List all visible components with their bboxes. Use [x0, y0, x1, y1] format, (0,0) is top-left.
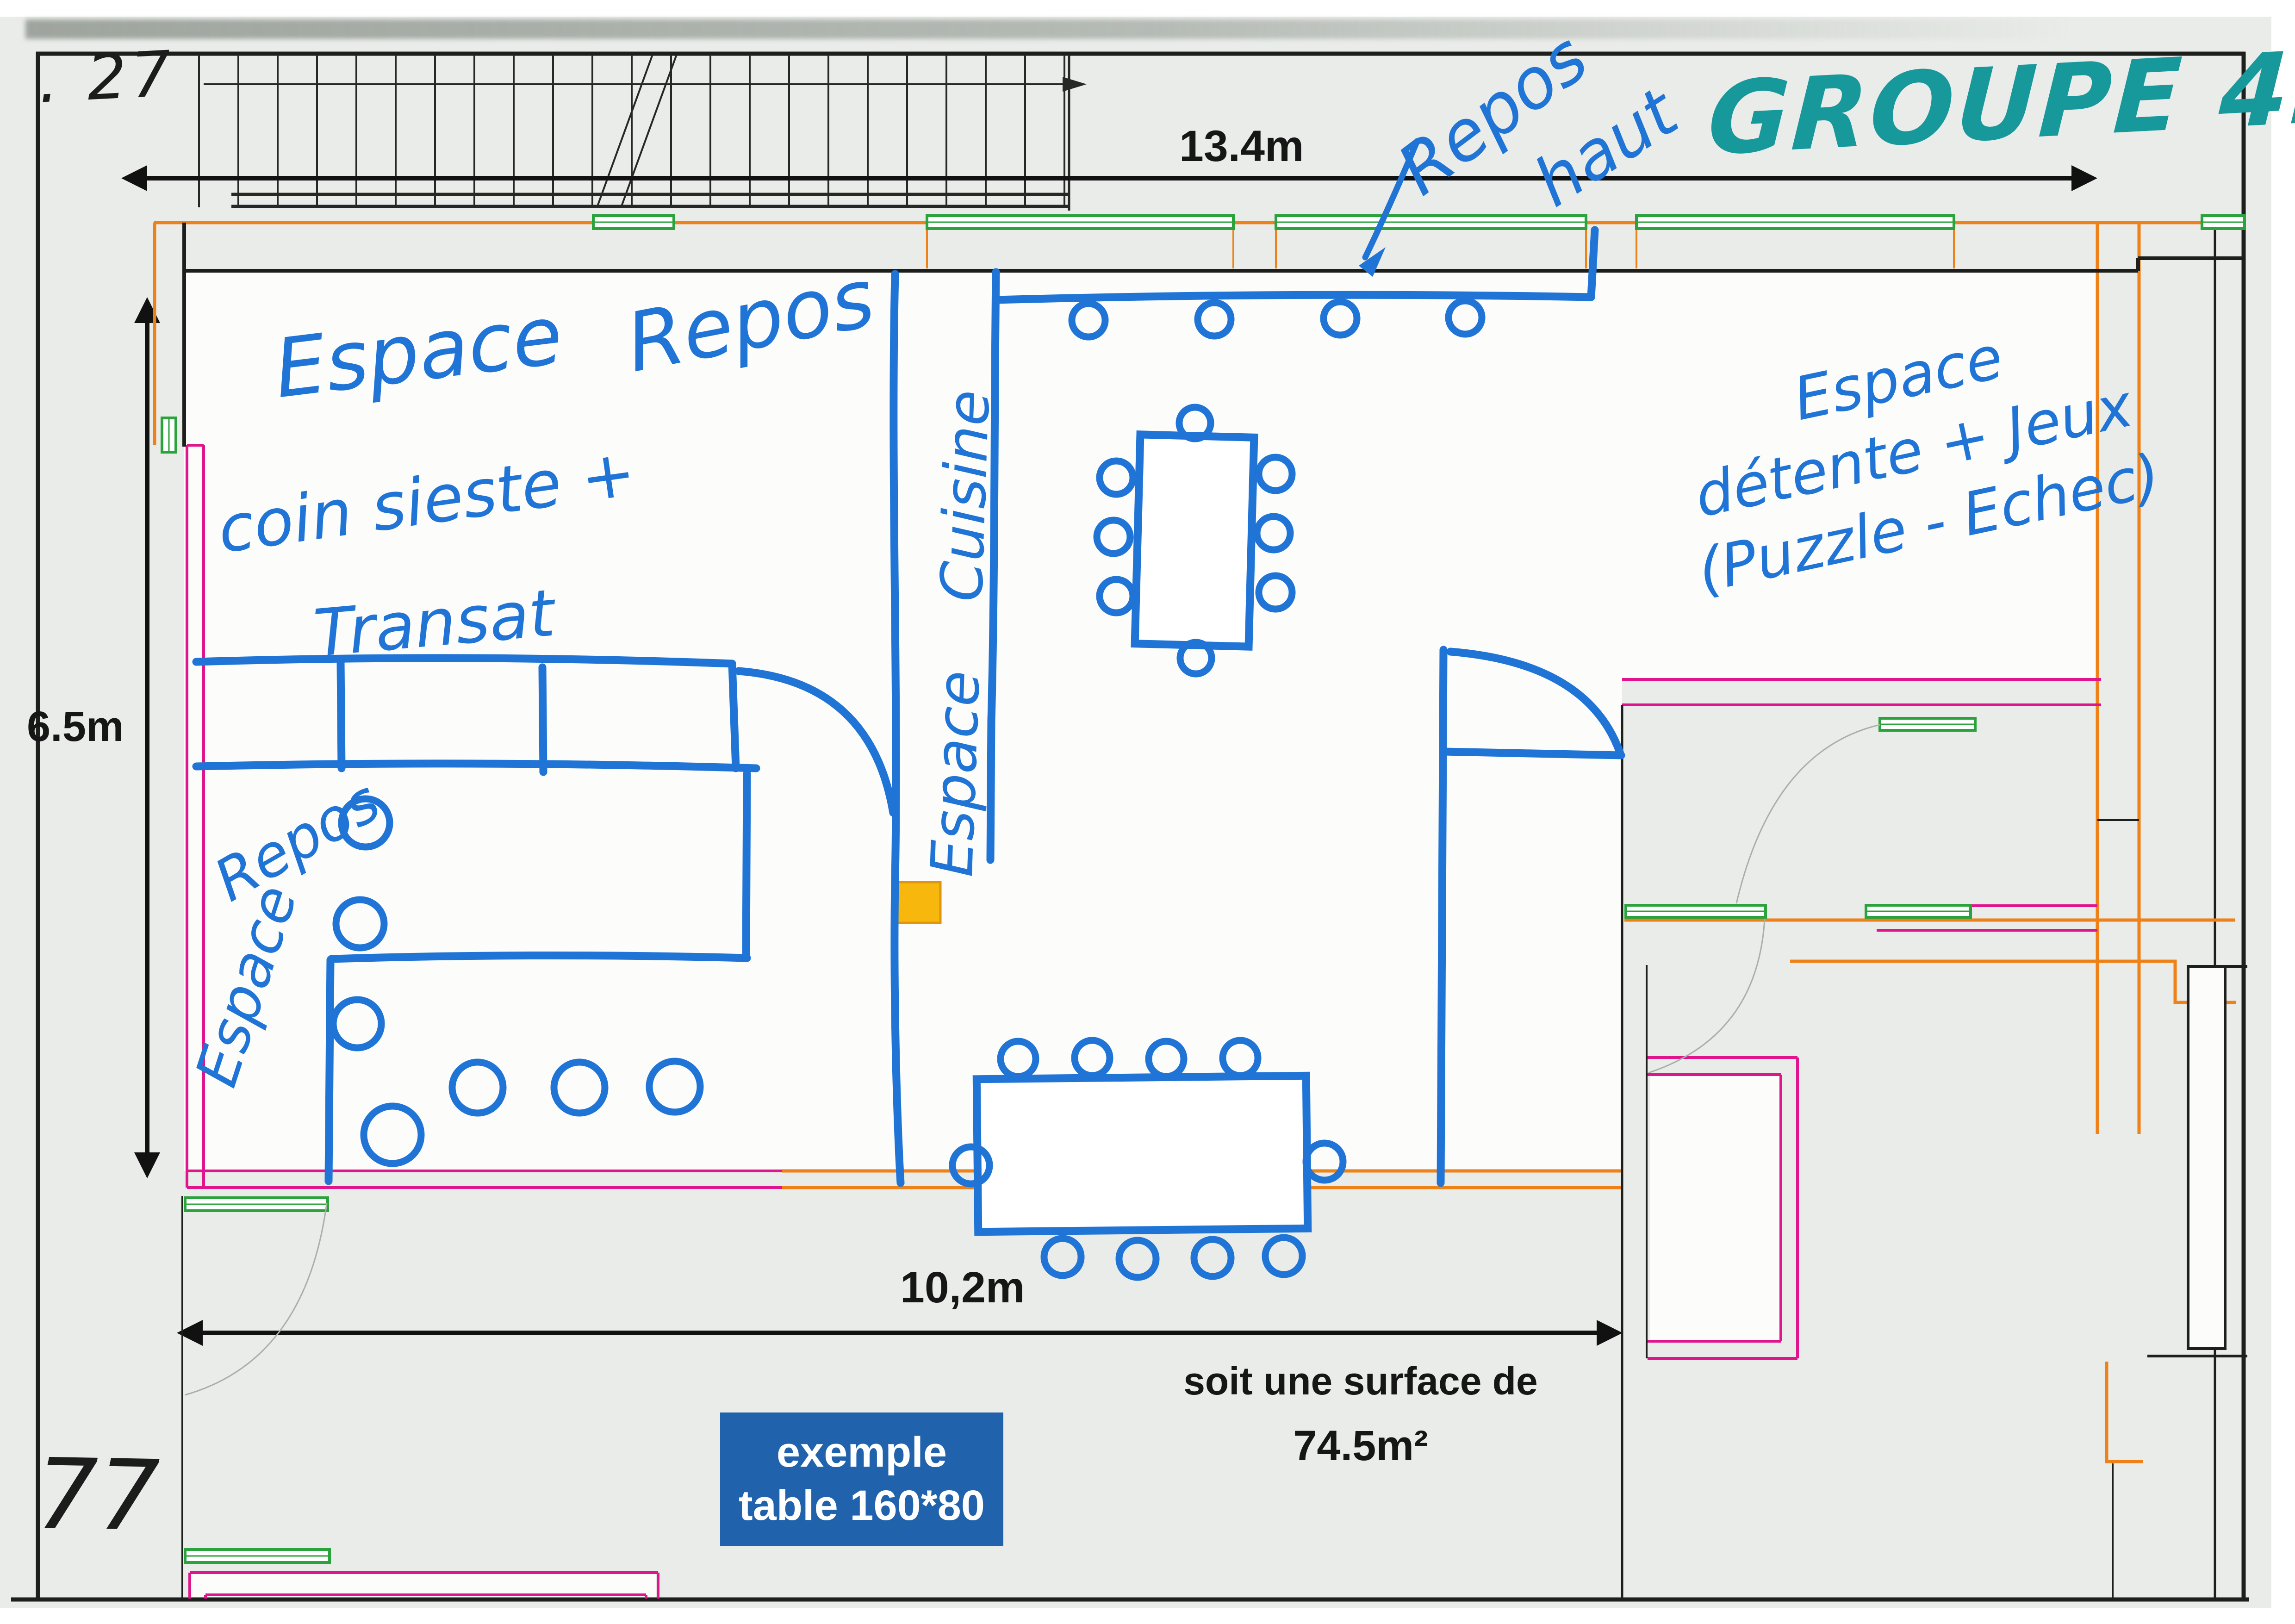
- vertical-table: [1135, 435, 1254, 647]
- surface-value: 74.5m²: [1115, 1422, 1606, 1470]
- legend-line1: exemple: [720, 1428, 1003, 1477]
- horizontal-table: [976, 1076, 1307, 1232]
- cuisine-word2: Cuisine: [928, 389, 1003, 603]
- bench-front-line: [196, 764, 756, 768]
- yellow-marker-square: [896, 882, 940, 923]
- surface-label: soit une surface de: [1115, 1359, 1606, 1404]
- table-example-legend: exemple table 160*80: [720, 1412, 1003, 1546]
- lower-bench-line: [331, 955, 747, 959]
- blue-wall-right: [1441, 650, 1443, 1183]
- corner-note: . 27: [36, 37, 177, 117]
- staircase: [199, 55, 1087, 211]
- cuisine-word1: Espace: [919, 670, 993, 878]
- stairs-direction-arrowhead: [1063, 77, 1087, 92]
- dim-label-top: 13.4m: [1179, 121, 1304, 172]
- right-door-frame: [2188, 966, 2225, 1349]
- scanned-floor-plan-page: . 27 13.4m Repos haut GROUPE 4B Espace R…: [0, 0, 2295, 1624]
- dim-label-left: 6.5m: [27, 703, 124, 751]
- dim-label-bottom: 10,2m: [900, 1263, 1025, 1313]
- blue-door-leaf: [1443, 752, 1621, 755]
- sheet-number: 77: [35, 1437, 161, 1553]
- legend-line2: table 160*80: [720, 1481, 1003, 1530]
